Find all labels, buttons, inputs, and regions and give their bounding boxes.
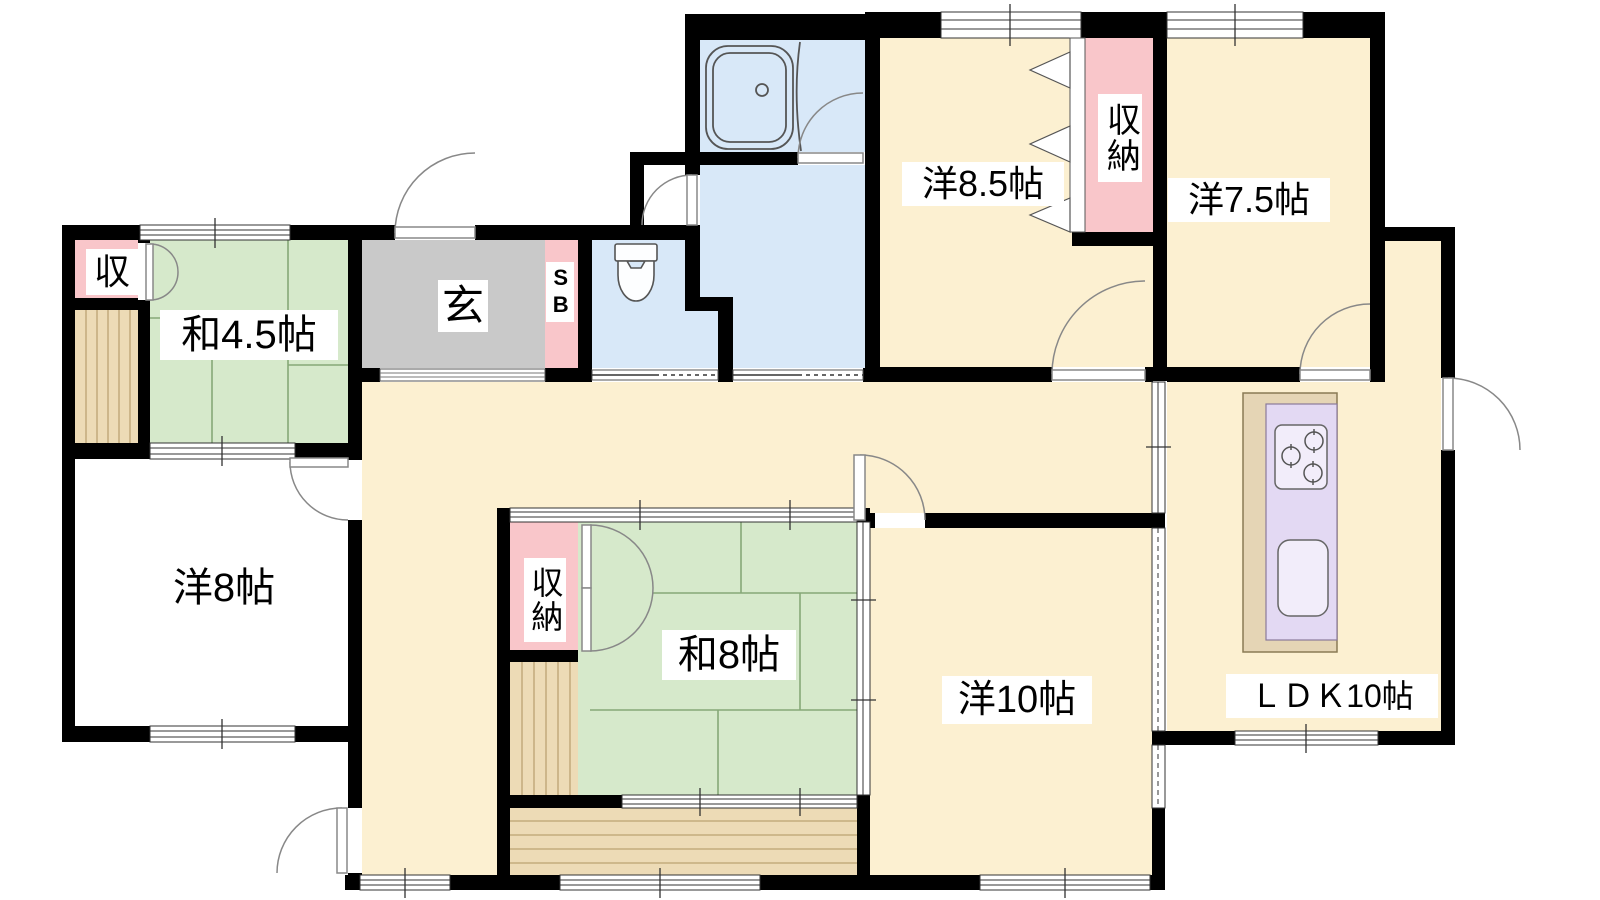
label-wa8: 和8帖 [662, 630, 796, 680]
washroom-sliding-door [733, 370, 863, 380]
label-yo8: 洋8帖 [158, 563, 290, 613]
label-closet-left: 収 [86, 249, 138, 295]
label-shoebox: SB [546, 262, 574, 322]
toilet-sliding-door [592, 370, 718, 380]
door-ldk-exterior [1443, 378, 1520, 450]
label-yo85: 洋8.5帖 [902, 162, 1064, 206]
door-entrance [395, 153, 475, 238]
label-ldk: ＬＤＫ10帖 [1226, 674, 1438, 718]
label-genkan: 玄 [438, 280, 488, 332]
ldk-nook-floor [1385, 241, 1441, 382]
kitchen-sink-icon [1278, 540, 1328, 616]
window [150, 719, 295, 749]
wood-strip-wa8-floor [510, 662, 578, 795]
kitchen-unit [1243, 393, 1337, 652]
label-wa45: 和4.5帖 [160, 310, 338, 360]
label-yo10: 洋10帖 [942, 676, 1092, 724]
floor-plan-drawing [0, 0, 1600, 900]
entrance-step [380, 369, 545, 381]
door-washroom-exterior [642, 175, 697, 225]
floor-plan: 収 和4.5帖 玄 SB 洋8.5帖 収納 洋7.5帖 洋8帖 収納 和8帖 洋… [0, 0, 1600, 900]
door-yo8 [290, 458, 362, 520]
door-rear-exterior [277, 808, 347, 873]
engawa-floor [510, 808, 857, 875]
label-closet85: 収納 [1098, 94, 1142, 182]
label-closet-wa8: 収納 [524, 558, 566, 642]
corridor-floor [362, 443, 497, 875]
label-yo75: 洋7.5帖 [1168, 178, 1330, 222]
veranda-left-floor [75, 310, 138, 443]
